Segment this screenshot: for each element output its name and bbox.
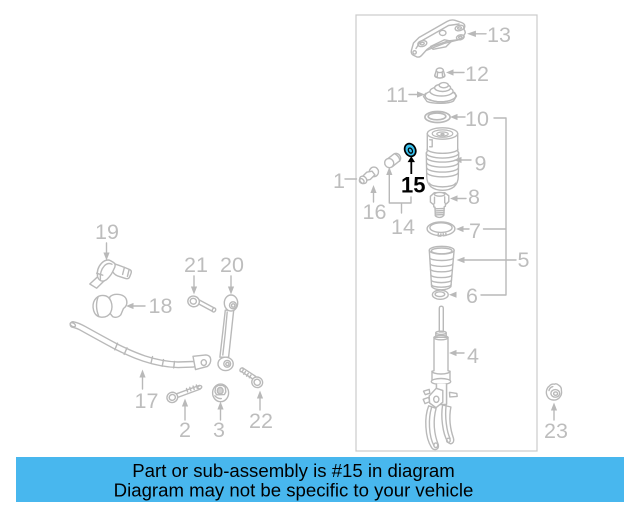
svg-text:2: 2 [179,418,191,442]
svg-text:22: 22 [249,409,273,433]
svg-text:10: 10 [465,107,489,131]
svg-text:23: 23 [544,419,568,443]
svg-text:16: 16 [363,200,387,224]
svg-text:12: 12 [465,62,489,86]
svg-text:Part or sub-assembly is #15 in: Part or sub-assembly is #15 in diagram [132,460,454,481]
svg-text:13: 13 [487,23,511,47]
svg-text:14: 14 [391,215,415,239]
svg-text:18: 18 [149,294,173,318]
svg-text:6: 6 [466,284,478,308]
svg-text:15: 15 [401,173,425,198]
svg-text:19: 19 [95,220,119,244]
svg-text:8: 8 [468,185,480,209]
svg-text:21: 21 [184,253,208,277]
svg-text:3: 3 [213,418,225,442]
svg-text:17: 17 [135,389,159,413]
svg-text:11: 11 [386,83,408,107]
svg-text:7: 7 [469,219,481,243]
svg-text:20: 20 [220,253,244,277]
svg-text:Diagram may not be specific to: Diagram may not be specific to your vehi… [114,480,474,501]
svg-text:5: 5 [518,248,530,272]
svg-text:4: 4 [467,344,479,368]
svg-text:9: 9 [475,152,487,176]
svg-text:1: 1 [333,169,345,193]
